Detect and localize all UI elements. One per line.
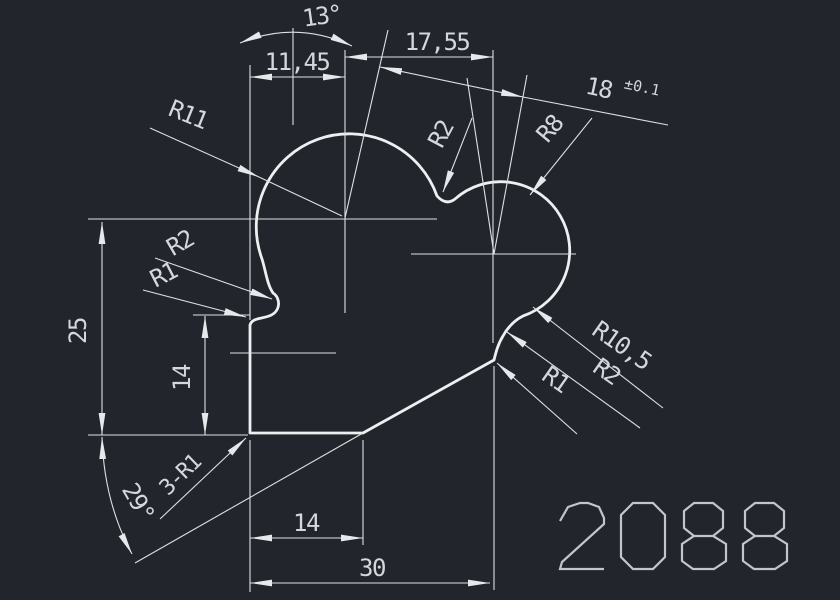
dim-label-3-r1: 3-R1 (155, 450, 206, 501)
dimension-radius-right-r1: R1 (497, 361, 577, 434)
cad-canvas[interactable]: 11,45 17,55 13° 18 ±0.1 R11 R2 R8 R2 R1 … (0, 0, 840, 600)
radial-line-right-lobe-b (494, 75, 527, 254)
dim-label-18-tolerance: ±0.1 (623, 75, 662, 100)
part-number-digit (743, 503, 787, 569)
dimension-width-bottom-total: 30 (250, 554, 490, 583)
dim-label-18: 18 (583, 72, 614, 105)
dimension-center-distance: 18 ±0.1 (380, 67, 668, 125)
dimension-angle-top: 13° (240, 0, 352, 46)
part-number-digit (560, 503, 604, 569)
dim-label-13deg: 13° (301, 0, 343, 33)
dim-label-17-55: 17,55 (405, 28, 470, 56)
dimension-fillet-note: 3-R1 (155, 438, 246, 519)
part-profile-outline (250, 134, 570, 433)
part-number-digit (682, 503, 726, 569)
cad-drawing: 11,45 17,55 13° 18 ±0.1 R11 R2 R8 R2 R1 … (0, 0, 840, 600)
dim-label-25: 25 (64, 318, 92, 344)
dimension-radius-right-lobe: R8 (530, 110, 592, 195)
radial-line-right-lobe-a (467, 78, 494, 254)
dimension-width-bottom-inner: 14 (250, 509, 363, 538)
dimension-width-upper-left: 11,45 (250, 48, 345, 77)
dim-label-30: 30 (359, 554, 385, 582)
dimension-radius-left-notch-r2: R2 (155, 224, 272, 299)
dim-label-r1-right: R1 (537, 361, 574, 399)
dimension-width-upper-right: 17,55 (345, 28, 493, 57)
part-number-digit (621, 503, 665, 569)
dimension-radius-left-lobe: R11 (150, 94, 342, 216)
dim-label-29deg: 29° (116, 478, 160, 526)
construction-lines (88, 28, 576, 592)
part-number (560, 503, 787, 569)
dimension-height-left-edge: 14 (168, 316, 205, 435)
dim-label-r2-valley: R2 (422, 116, 459, 152)
dim-label-14-bottom: 14 (293, 509, 320, 537)
dim-label-r8: R8 (531, 110, 569, 148)
radial-line-13deg (345, 30, 388, 218)
dim-label-r1-left: R1 (145, 256, 181, 293)
dimension-angle-bottom: 29° (102, 437, 160, 554)
dimension-height-total: 25 (64, 222, 102, 435)
dimension-radius-left-notch-r1: R1 (143, 256, 246, 317)
dim-label-r11: R11 (165, 94, 212, 135)
dim-label-14-left: 14 (168, 364, 196, 391)
dim-label-11-45: 11,45 (265, 48, 330, 76)
